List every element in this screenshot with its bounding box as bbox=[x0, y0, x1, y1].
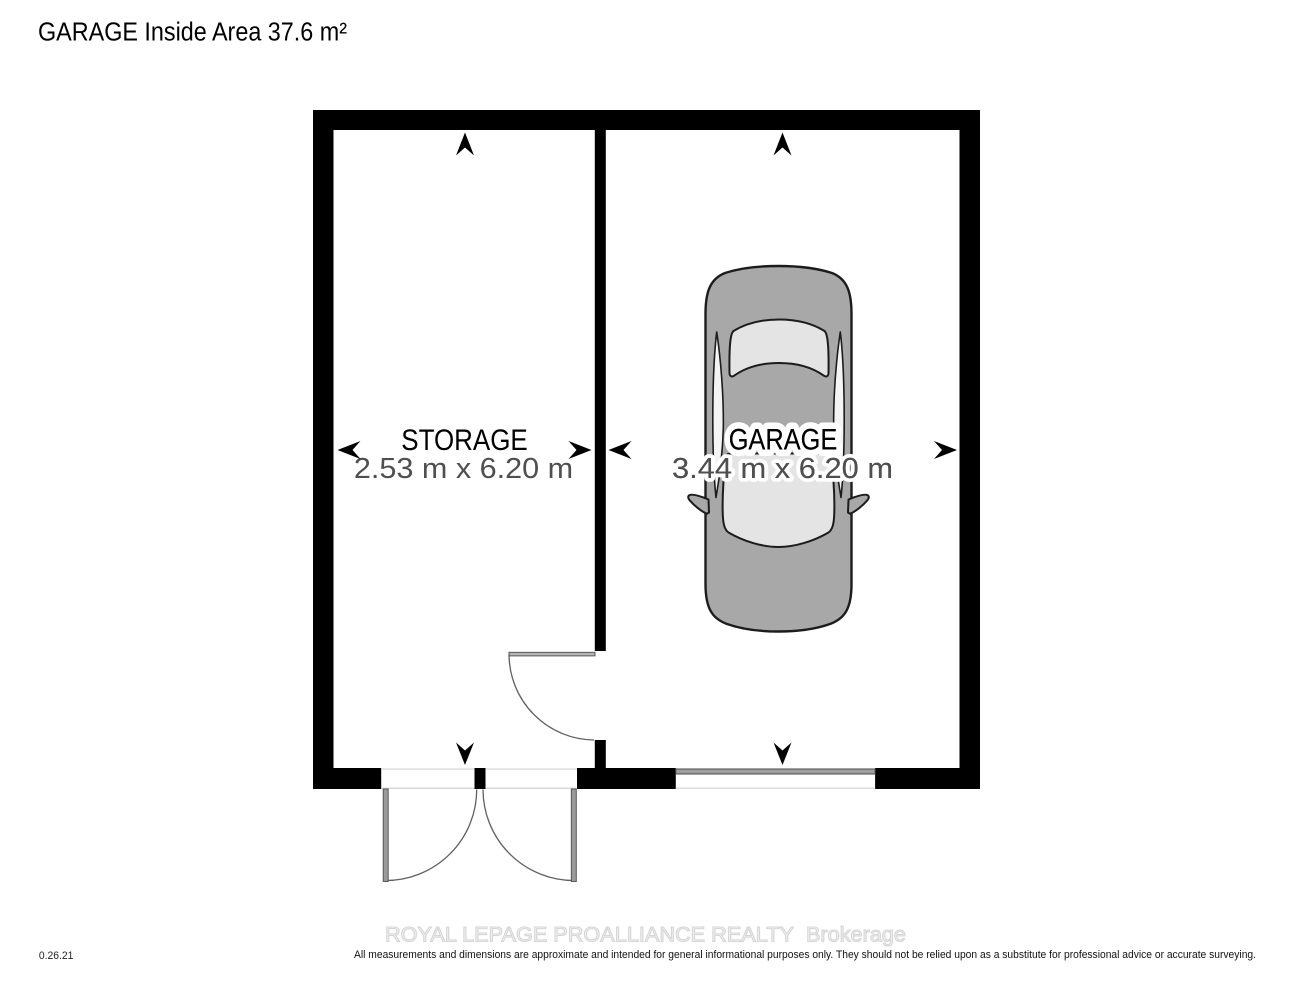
svg-text:All measurements and dimension: All measurements and dimensions are appr… bbox=[354, 949, 1256, 961]
svg-text:0.26.21: 0.26.21 bbox=[39, 950, 74, 962]
svg-text:3.44 m x 6.20 m: 3.44 m x 6.20 m bbox=[672, 452, 893, 484]
svg-text:2.53 m x 6.20 m: 2.53 m x 6.20 m bbox=[354, 452, 573, 484]
svg-text:GARAGE Inside Area 37.6 m²: GARAGE Inside Area 37.6 m² bbox=[38, 19, 347, 47]
svg-text:ROYAL LEPAGE PROALLIANCE REALT: ROYAL LEPAGE PROALLIANCE REALTY Brokerag… bbox=[385, 923, 906, 946]
